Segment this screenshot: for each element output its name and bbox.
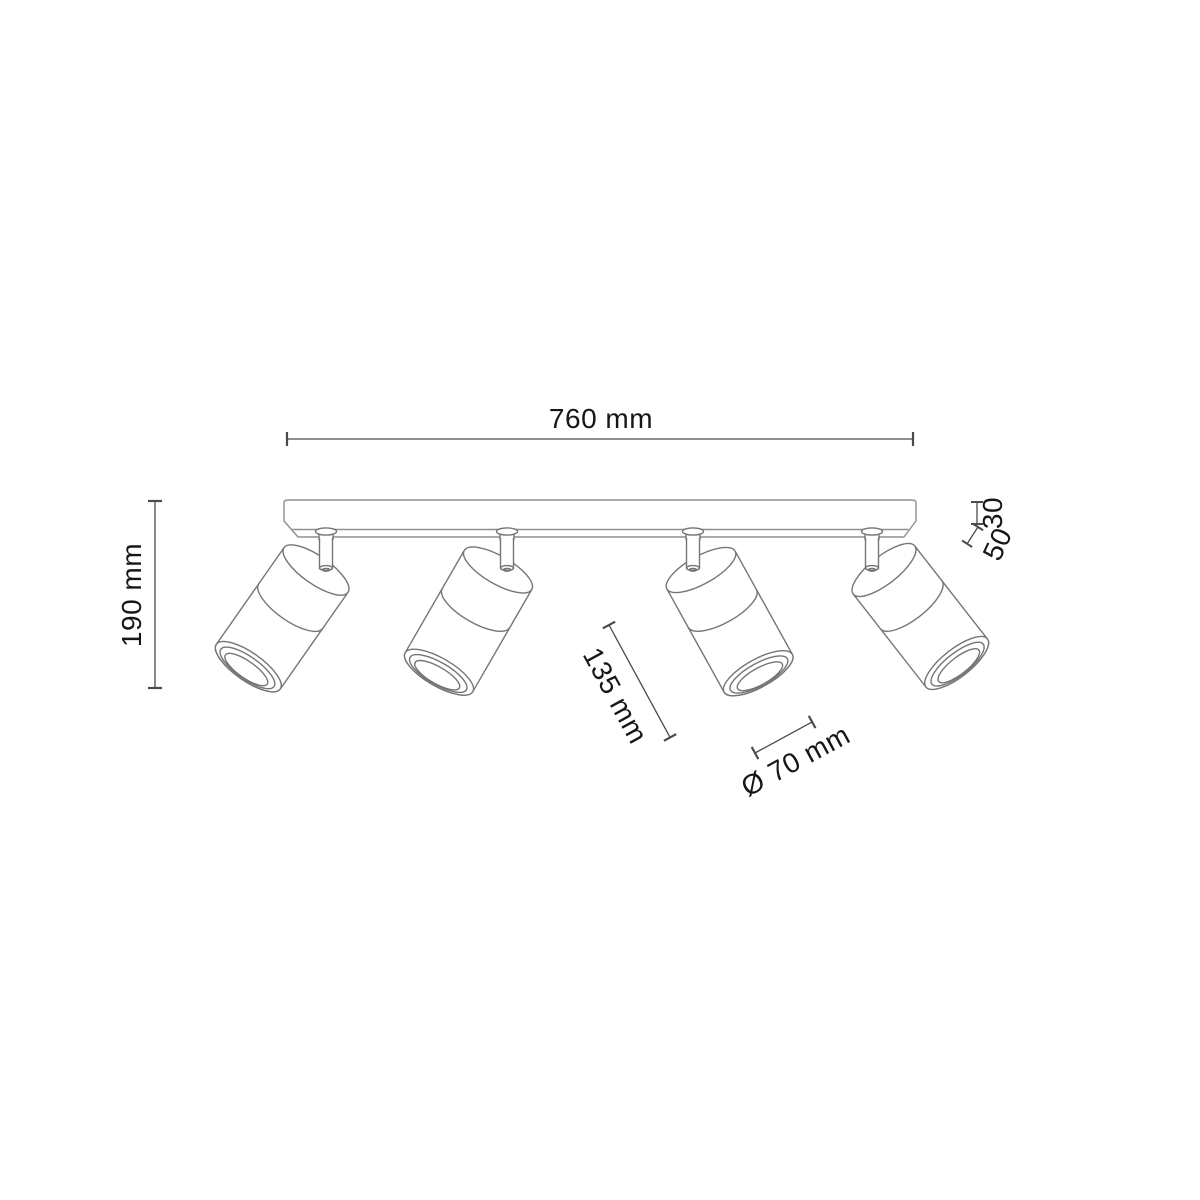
spotlight-dimension-diagram: 760 mm 190 mm 30 50 135 mm Ø 70 mm (0, 0, 1200, 1200)
spot-head-2 (398, 538, 539, 703)
label-height: 190 mm (116, 543, 147, 647)
label-width: 760 mm (549, 403, 653, 434)
dim-line-width (287, 432, 913, 446)
dim-line-height (148, 501, 162, 688)
spot-head-1 (208, 536, 356, 700)
technical-drawing-page: 760 mm 190 mm 30 50 135 mm Ø 70 mm (0, 0, 1200, 1200)
ceiling-rail (284, 500, 916, 537)
label-head-length: 135 mm (577, 642, 654, 748)
spot-head-3 (660, 539, 799, 705)
ceiling-rail-outline (284, 500, 916, 537)
